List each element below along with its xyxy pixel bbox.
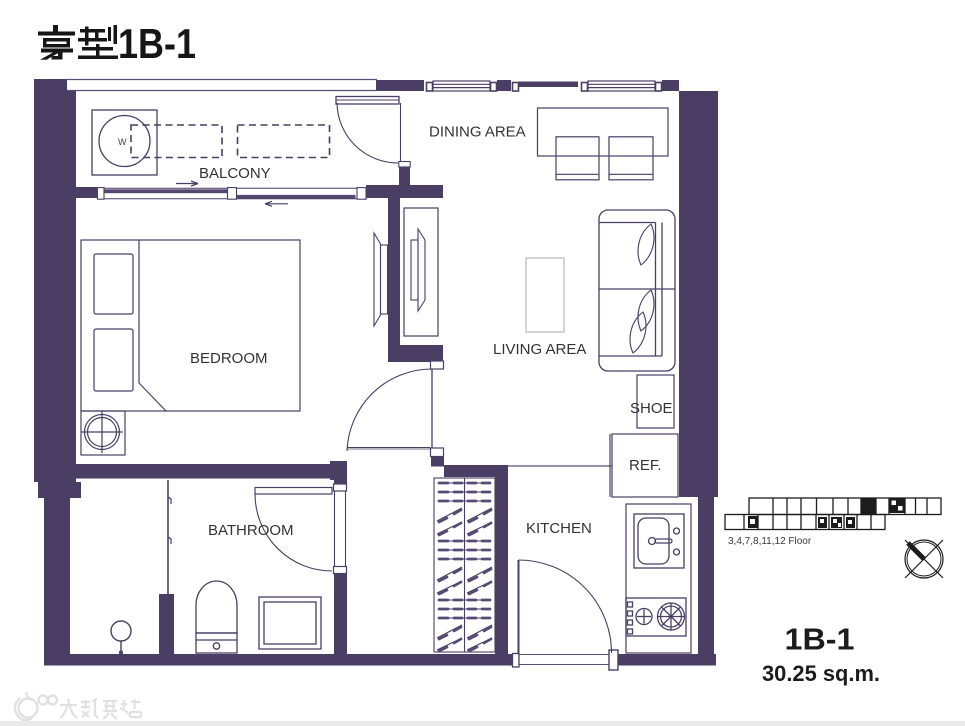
svg-text:KITCHEN: KITCHEN	[526, 520, 592, 537]
svg-text:LIVING AREA: LIVING AREA	[493, 341, 586, 358]
svg-text:1B-1: 1B-1	[118, 20, 196, 67]
svg-text:SHOE: SHOE	[630, 400, 673, 417]
svg-text:BEDROOM: BEDROOM	[190, 350, 268, 367]
svg-text:1B-1: 1B-1	[785, 622, 855, 657]
svg-text:BATHROOM: BATHROOM	[208, 522, 294, 539]
svg-text:BALCONY: BALCONY	[199, 165, 271, 182]
svg-text:3,4,7,8,11,12 Floor: 3,4,7,8,11,12 Floor	[728, 536, 812, 547]
svg-text:REF.: REF.	[629, 457, 662, 474]
svg-text:30.25 sq.m.: 30.25 sq.m.	[762, 661, 880, 686]
svg-text:DINING AREA: DINING AREA	[429, 124, 526, 141]
svg-text:W: W	[118, 137, 127, 147]
